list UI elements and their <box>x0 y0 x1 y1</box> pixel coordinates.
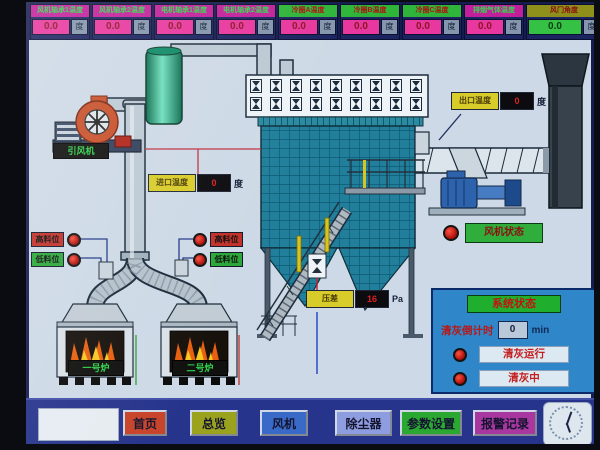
pulse-valve-icon <box>310 97 322 111</box>
pulse-valve-icon <box>390 79 402 93</box>
low-level-label: 低料位 <box>210 252 243 267</box>
pulse-valve-icon <box>270 79 282 93</box>
level-indicator-left-low: 低料位 <box>31 252 81 267</box>
gauge-value-row: 0.0度 <box>403 17 461 37</box>
pulse-valve-grid <box>250 79 424 111</box>
monitor-photo-frame: 风机轴承1温度0.0度风机轴承2温度0.0度电机轴承1温度0.0度电机轴承2温度… <box>0 0 600 450</box>
gauge-value-row: 0.0度 <box>155 17 213 37</box>
low-level-lamp <box>67 253 81 267</box>
gauge-unit: 度 <box>443 19 460 35</box>
pulse-valve-icon <box>370 79 382 93</box>
pulse-valve-icon <box>350 79 362 93</box>
pulse-valve-icon <box>350 97 362 111</box>
pressure-label: 压差 <box>306 290 354 308</box>
countdown-value: 0 <box>498 321 528 339</box>
fan-status-indicator: 风机状态 <box>443 223 543 243</box>
pulse-valve-icon <box>310 79 322 93</box>
level-indicator-right-high: 高料位 <box>193 232 243 247</box>
level-sensor-pot-right <box>175 260 188 276</box>
gauge-label: 排烟气体温度 <box>465 5 523 17</box>
gauge-value-row: 0.0度 <box>341 17 399 37</box>
gauge-value: 0.0 <box>218 19 256 35</box>
cleaning-active-label: 清灰中 <box>479 370 569 387</box>
fan-status-lamp <box>443 225 459 241</box>
high-level-lamp <box>193 233 207 247</box>
gauge-value: 0.0 <box>156 19 194 35</box>
high-level-lamp <box>67 233 81 247</box>
gauge-value-row: 0.0度 <box>279 17 337 37</box>
gauge-unit: 度 <box>71 19 88 35</box>
hmi-screen: 风机轴承1温度0.0度风机轴承2温度0.0度电机轴承1温度0.0度电机轴承2温度… <box>26 2 594 444</box>
pressure-value: 16 <box>355 290 389 308</box>
gauge-value-row: 0.0度 <box>93 17 151 37</box>
gauge-label: 电机轴承2温度 <box>217 5 275 17</box>
nav-button-1[interactable]: 首页 <box>123 410 167 436</box>
gauge-unit: 度 <box>257 19 274 35</box>
gauge-label: 风机轴承2温度 <box>93 5 151 17</box>
gauge-label: 冷圈A温度 <box>279 5 337 17</box>
gauge-value-row: 0.0度 <box>527 17 594 37</box>
gauge-label: 风门角度 <box>527 5 594 17</box>
low-level-label: 低料位 <box>31 252 64 267</box>
gauge-label: 风机轴承1温度 <box>31 5 89 17</box>
gauge-unit: 度 <box>133 19 150 35</box>
gauge-label: 冷圈B温度 <box>341 5 399 17</box>
cleaning-run-lamp <box>453 348 467 362</box>
high-level-label: 高料位 <box>210 232 243 247</box>
gauge-value: 0.0 <box>32 19 70 35</box>
nav-button-5[interactable]: 参数设置 <box>400 410 462 436</box>
pulse-valve-icon <box>290 97 302 111</box>
gauge-unit: 度 <box>381 19 398 35</box>
pulse-valve-icon <box>290 79 302 93</box>
pulse-valve-icon <box>370 97 382 111</box>
inlet-temp-value: 0 <box>197 174 231 192</box>
pulse-valve-icon <box>250 97 262 111</box>
rotary-valve <box>308 254 326 278</box>
pipe-highlight <box>130 106 134 258</box>
cleaning-active-indicator: 清灰中 <box>453 370 594 387</box>
pulse-valve-icon <box>330 79 342 93</box>
gauge-unit: 度 <box>583 19 594 35</box>
pulse-valve-icon <box>270 97 282 111</box>
gauge-unit: 度 <box>319 19 336 35</box>
panel-title: 系统状态 <box>467 295 561 313</box>
temperature-gauge: 排烟气体温度0.0度 <box>464 4 524 40</box>
level-indicator-right-low: 低料位 <box>193 252 243 267</box>
gauge-value-row: 0.0度 <box>31 17 89 37</box>
nav-button-6[interactable]: 报警记录 <box>473 410 537 436</box>
nav-button-4[interactable]: 除尘器 <box>335 410 392 436</box>
temperature-gauge: 冷圈B温度0.0度 <box>340 4 400 40</box>
process-diagram-area: 引风机 进口温度 0 度 出口温度 0 度 压差 16 Pa 高料位 <box>29 40 591 398</box>
gauge-value: 0.0 <box>94 19 132 35</box>
pulse-valve-icon <box>390 97 402 111</box>
pressure-unit: Pa <box>390 294 403 304</box>
level-sensor-pot-left <box>99 262 113 279</box>
gauge-value: 0.0 <box>528 19 582 35</box>
low-level-lamp <box>193 253 207 267</box>
gauge-unit: 度 <box>505 19 522 35</box>
temperature-gauge-row: 风机轴承1温度0.0度风机轴承2温度0.0度电机轴承1温度0.0度电机轴承2温度… <box>26 2 594 40</box>
fan-label-plate: 引风机 <box>53 143 109 159</box>
gauge-value: 0.0 <box>342 19 380 35</box>
pressure-meter: 压差 16 Pa <box>306 290 403 308</box>
blank-display-box <box>38 408 119 441</box>
cleaning-countdown: 清灰倒计时 0 min <box>441 321 594 339</box>
temperature-gauge: 风机轴承1温度0.0度 <box>30 4 90 40</box>
cleaning-run-label: 清灰运行 <box>479 346 569 363</box>
pulse-valve-icon <box>410 79 422 93</box>
chimney-stack <box>542 54 589 208</box>
gauge-value-row: 0.0度 <box>465 17 523 37</box>
system-status-panel: 系统状态 清灰倒计时 0 min 清灰运行 清灰中 <box>431 288 594 394</box>
level-indicator-left-high: 高料位 <box>31 232 81 247</box>
outlet-temp-unit: 度 <box>535 95 546 108</box>
nav-button-2[interactable]: 总览 <box>190 410 238 436</box>
gauge-value: 0.0 <box>466 19 504 35</box>
outlet-temp-label: 出口温度 <box>451 92 499 110</box>
temperature-gauge: 冷圈C温度0.0度 <box>402 4 462 40</box>
inlet-temp-label: 进口温度 <box>148 174 196 192</box>
air-tank <box>146 47 182 124</box>
pulse-valve-icon <box>410 97 422 111</box>
temperature-gauge: 风机轴承2温度0.0度 <box>92 4 152 40</box>
inlet-temp-unit: 度 <box>232 177 243 190</box>
clock-widget <box>543 402 592 444</box>
cleaning-run-indicator: 清灰运行 <box>453 346 594 363</box>
gauge-label: 电机轴承1温度 <box>155 5 213 17</box>
navigation-bar: 首页总览风机除尘器参数设置报警记录 <box>26 398 594 444</box>
outlet-temp-meter: 出口温度 0 度 <box>451 92 546 110</box>
countdown-unit: min <box>532 325 550 336</box>
furnace-1-label: 一号炉 <box>68 360 124 376</box>
fan-status-label: 风机状态 <box>465 223 543 243</box>
temperature-gauge: 电机轴承1温度0.0度 <box>154 4 214 40</box>
gauge-label: 冷圈C温度 <box>403 5 461 17</box>
temperature-gauge: 电机轴承2温度0.0度 <box>216 4 276 40</box>
gauge-value: 0.0 <box>280 19 318 35</box>
nav-button-3[interactable]: 风机 <box>260 410 308 436</box>
gauge-value-row: 0.0度 <box>217 17 275 37</box>
furnace-2-label: 二号炉 <box>172 360 228 376</box>
temperature-gauge: 风门角度0.0度 <box>526 4 594 40</box>
gauge-unit: 度 <box>195 19 212 35</box>
countdown-label: 清灰倒计时 <box>441 323 494 338</box>
inlet-temp-meter: 进口温度 0 度 <box>148 174 243 192</box>
temperature-gauge: 冷圈A温度0.0度 <box>278 4 338 40</box>
pulse-valve-icon <box>250 79 262 93</box>
cleaning-active-lamp <box>453 372 467 386</box>
outlet-temp-value: 0 <box>500 92 534 110</box>
pulse-valve-icon <box>330 97 342 111</box>
high-level-label: 高料位 <box>31 232 64 247</box>
gauge-value: 0.0 <box>404 19 442 35</box>
